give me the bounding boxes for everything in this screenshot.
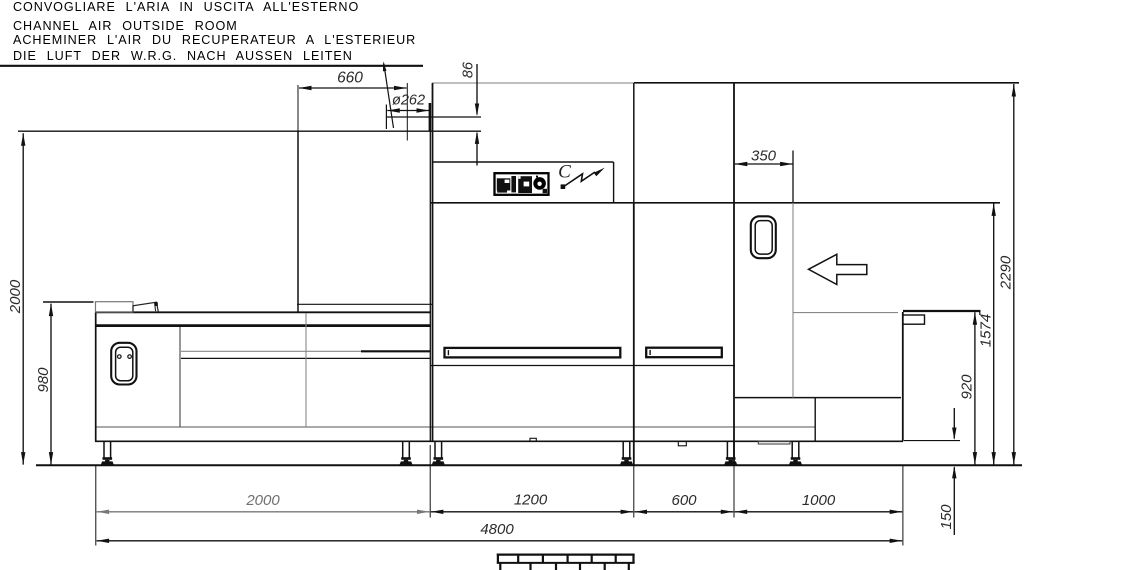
svg-text:920: 920 [959, 374, 976, 400]
svg-text:2000: 2000 [245, 492, 280, 509]
svg-text:ø262: ø262 [392, 93, 425, 109]
svg-text:1574: 1574 [978, 314, 995, 347]
svg-text:2000: 2000 [7, 279, 24, 314]
svg-text:600: 600 [671, 492, 697, 509]
svg-text:1000: 1000 [802, 492, 836, 509]
svg-text:4800: 4800 [480, 521, 514, 538]
svg-text:1200: 1200 [514, 492, 548, 509]
svg-text:C: C [558, 162, 571, 183]
svg-text:980: 980 [35, 367, 52, 393]
svg-text:350: 350 [751, 148, 777, 165]
svg-text:2290: 2290 [998, 255, 1015, 290]
svg-text:150: 150 [938, 504, 955, 530]
